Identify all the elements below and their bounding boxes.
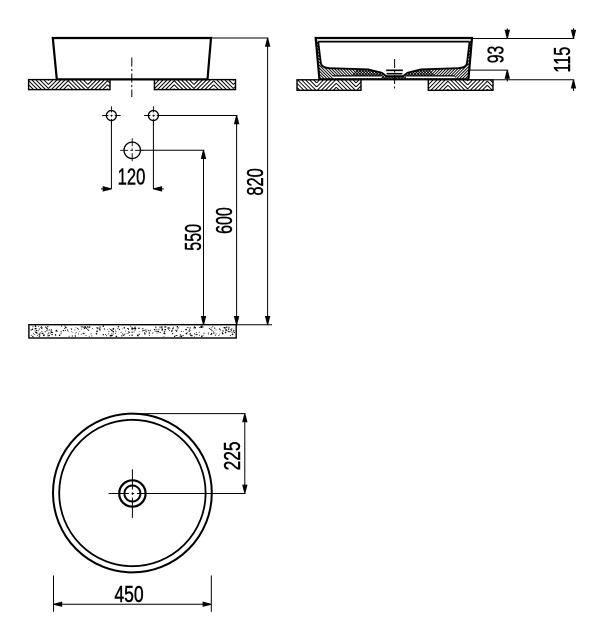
svg-text:550: 550 — [180, 224, 206, 251]
svg-text:225: 225 — [219, 441, 245, 470]
svg-text:450: 450 — [114, 581, 143, 607]
svg-text:820: 820 — [242, 168, 268, 195]
svg-text:115: 115 — [549, 47, 575, 73]
svg-text:600: 600 — [211, 207, 237, 234]
svg-text:93: 93 — [482, 46, 508, 63]
svg-text:120: 120 — [118, 163, 146, 189]
